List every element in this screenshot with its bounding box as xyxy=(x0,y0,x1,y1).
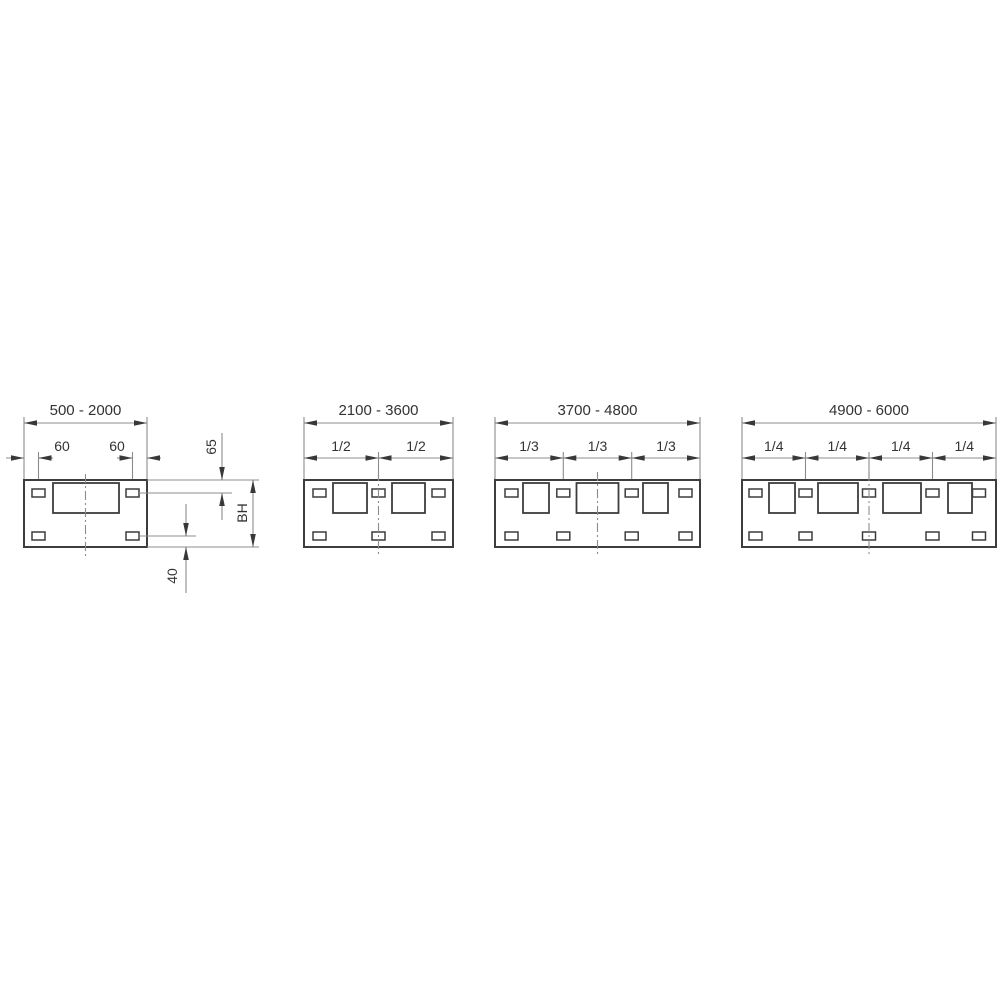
mounting-slot xyxy=(973,489,986,497)
cutout-square xyxy=(333,483,367,513)
fraction-label: 1/4 xyxy=(955,438,975,454)
mounting-slot xyxy=(313,532,326,540)
range-dimension-1: 500 - 2000 xyxy=(24,402,147,479)
arrowhead-right xyxy=(366,455,379,461)
arrowhead-right xyxy=(687,420,700,426)
drawing-3-width-3700-4800: 3700 - 4800 1/3 1/3 1/3 xyxy=(495,402,700,556)
arrowhead-left xyxy=(495,420,508,426)
mounting-slot xyxy=(432,532,445,540)
dim-label-40: 40 xyxy=(164,568,180,584)
arrowhead-left xyxy=(147,455,160,461)
drawing-4-width-4900-6000: 4900 - 6000 1/4 1/4 1/4 1/4 xyxy=(742,402,996,556)
cutout-square xyxy=(523,483,549,513)
mounting-slot xyxy=(505,489,518,497)
arrowhead-down xyxy=(219,467,225,480)
arrowhead-right xyxy=(920,455,933,461)
mounting-slot xyxy=(799,489,812,497)
range-label: 4900 - 6000 xyxy=(829,402,909,419)
arrowhead-left xyxy=(806,455,819,461)
fraction-label: 1/3 xyxy=(588,438,608,454)
arrowhead-right xyxy=(440,455,453,461)
arrowhead-right xyxy=(793,455,806,461)
cutout-square xyxy=(818,483,858,513)
arrowhead-left xyxy=(304,455,317,461)
mounting-slot xyxy=(505,532,518,540)
mounting-slot xyxy=(926,532,939,540)
mounting-slot xyxy=(557,489,570,497)
mounting-slot xyxy=(126,489,139,497)
dimension-drawing-page: 500 - 2000 60 60 xyxy=(0,0,1000,1000)
fraction-label: 1/4 xyxy=(891,438,911,454)
arrowhead-right xyxy=(134,420,147,426)
arrowhead-left xyxy=(632,455,645,461)
mounting-slot xyxy=(126,532,139,540)
arrowhead-right xyxy=(11,455,24,461)
fraction-label: 1/4 xyxy=(828,438,848,454)
arrowhead-left xyxy=(742,455,755,461)
arrowhead-left xyxy=(869,455,882,461)
arrowhead-right xyxy=(856,455,869,461)
mounting-slot xyxy=(799,532,812,540)
arrowhead-right xyxy=(983,420,996,426)
arrowhead-left xyxy=(495,455,508,461)
fraction-label: 1/2 xyxy=(406,438,426,454)
range-label: 500 - 2000 xyxy=(50,402,122,419)
fraction-label: 1/3 xyxy=(656,438,676,454)
dimension-diagram: 500 - 2000 60 60 xyxy=(0,0,1000,1000)
mounting-slot xyxy=(926,489,939,497)
dimension-BH: BH xyxy=(147,480,259,547)
mounting-slot xyxy=(679,489,692,497)
cutout-square xyxy=(769,483,795,513)
arrowhead-right xyxy=(687,455,700,461)
mounting-slot xyxy=(625,489,638,497)
arrowhead-left xyxy=(379,455,392,461)
dim-label-65: 65 xyxy=(203,439,219,455)
arrowhead-right xyxy=(619,455,632,461)
dim-label-bh: BH xyxy=(234,503,250,522)
arrowhead-left xyxy=(563,455,576,461)
fraction-label: 1/4 xyxy=(764,438,784,454)
arrowhead-left xyxy=(933,455,946,461)
arrowhead-up xyxy=(183,547,189,560)
cutout-square xyxy=(948,483,972,513)
fraction-label: 1/2 xyxy=(331,438,351,454)
drawing-1-width-500-2000: 500 - 2000 60 60 xyxy=(6,402,259,593)
arrowhead-left xyxy=(742,420,755,426)
drawing-2-width-2100-3600: 2100 - 3600 1/2 1/2 xyxy=(304,402,453,556)
mounting-slot xyxy=(32,489,45,497)
range-label: 3700 - 4800 xyxy=(557,402,637,419)
offset-label: 60 xyxy=(54,438,70,454)
arrowhead-left xyxy=(24,420,37,426)
arrowhead-down xyxy=(183,523,189,536)
mounting-slot xyxy=(32,532,45,540)
mounting-slot xyxy=(749,489,762,497)
arrowhead-left xyxy=(304,420,317,426)
arrowhead-up xyxy=(250,480,256,493)
mounting-slot xyxy=(749,532,762,540)
arrowhead-right xyxy=(440,420,453,426)
arrowhead-up xyxy=(219,493,225,506)
mounting-slot xyxy=(557,532,570,540)
range-label: 2100 - 3600 xyxy=(338,402,418,419)
mounting-slot xyxy=(973,532,986,540)
mounting-slot xyxy=(679,532,692,540)
mounting-slot xyxy=(313,489,326,497)
cutout-square xyxy=(392,483,425,513)
arrowhead-down xyxy=(250,534,256,547)
cutout-square xyxy=(883,483,921,513)
fraction-label: 1/3 xyxy=(519,438,539,454)
arrowhead-right xyxy=(550,455,563,461)
mounting-slot xyxy=(432,489,445,497)
arrowhead-right xyxy=(120,455,133,461)
arrowhead-left xyxy=(39,455,52,461)
cutout-square xyxy=(643,483,668,513)
arrowhead-right xyxy=(983,455,996,461)
mounting-slot xyxy=(625,532,638,540)
offset-label: 60 xyxy=(109,438,125,454)
